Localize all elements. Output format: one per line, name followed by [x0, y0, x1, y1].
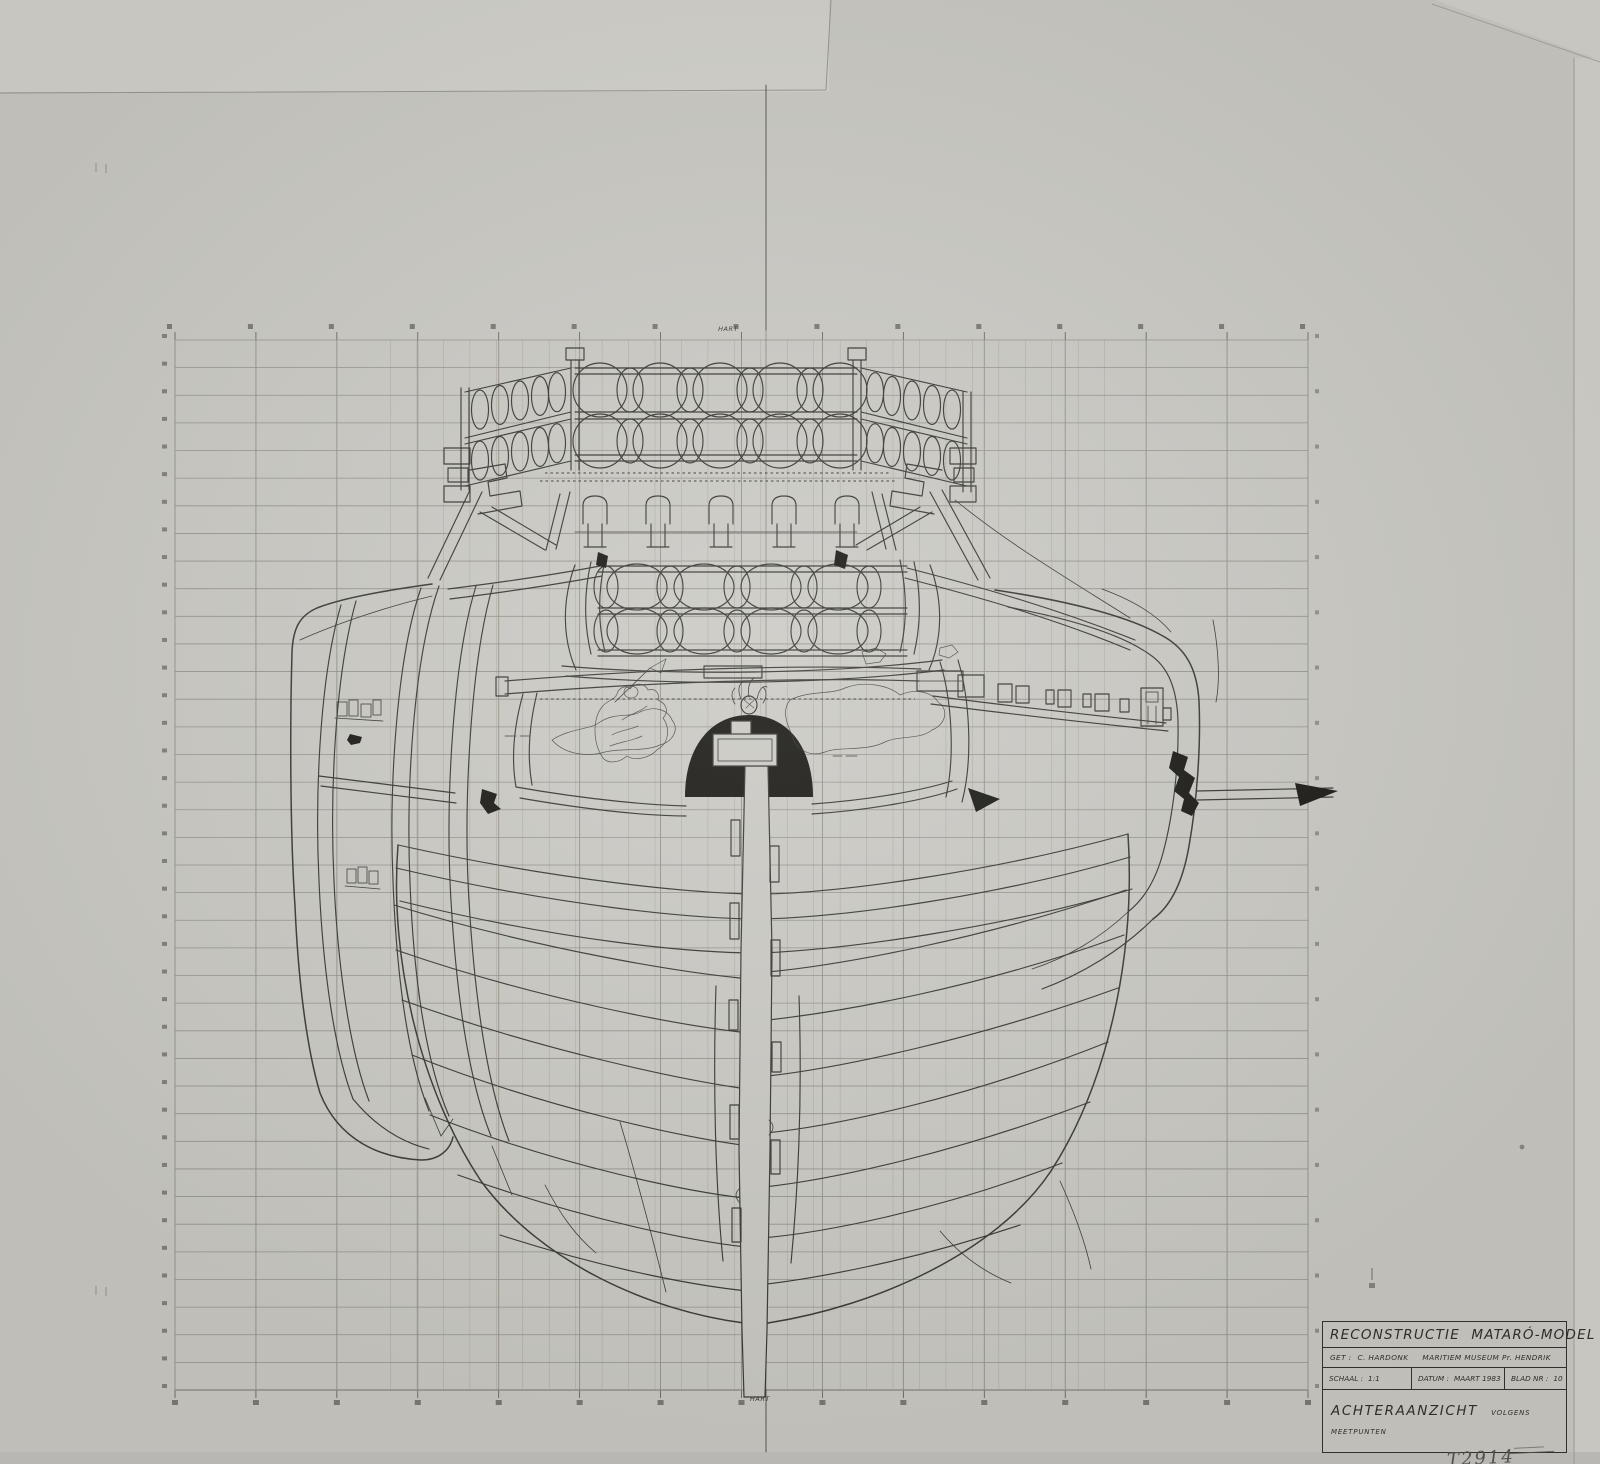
- sheet-number-label: BLAD NR :: [1511, 1374, 1548, 1383]
- stern-view-drawing: HART HART: [0, 0, 1600, 1464]
- scale-value: 1:1: [1368, 1374, 1380, 1383]
- blueprint-photo: HART HART: [0, 0, 1600, 1464]
- drawn-by-row: GET : C. HARDONK MARITIEM MUSEUM Pr. HEN…: [1323, 1348, 1566, 1368]
- ship-stern-drawing: [291, 348, 1338, 1397]
- sheet-edges: [0, 0, 1600, 1464]
- rudder: [713, 721, 781, 1397]
- title-block: RECONSTRUCTIE MATARÓ-MODEL GET : C. HARD…: [1322, 1321, 1567, 1453]
- inventory-number-note: T2914: [1446, 1446, 1515, 1464]
- scale-label: SCHAAL :: [1329, 1374, 1363, 1383]
- rudder-neck: [731, 721, 751, 735]
- drawn-by-label: GET :: [1330, 1353, 1352, 1362]
- poop-rail: [428, 348, 990, 580]
- port-quarter-structure: [291, 584, 509, 1160]
- sheet-number-value: 10: [1553, 1374, 1562, 1383]
- approval-scribble: [1508, 1445, 1554, 1454]
- scale-date-sheet-row: SCHAAL : 1:1 DATUM : MAART 1983 BLAD NR …: [1323, 1368, 1566, 1390]
- view-title-row: ACHTERAANZICHT VOLGENS MEETPUNTEN: [1323, 1390, 1566, 1460]
- transom-crest: [732, 678, 767, 714]
- date-label: DATUM :: [1418, 1374, 1449, 1383]
- stanchions: [546, 492, 896, 550]
- drawn-by-value: C. HARDONK: [1358, 1353, 1409, 1362]
- starboard-quarter-structure: [995, 589, 1338, 989]
- view-title: ACHTERAANZICHT: [1331, 1403, 1478, 1419]
- drawing-title: RECONSTRUCTIE MATARÓ-MODEL: [1323, 1322, 1566, 1348]
- hart-label-top: HART: [718, 325, 738, 333]
- date-value: MAART 1983: [1454, 1374, 1501, 1383]
- institution: MARITIEM MUSEUM Pr. HENDRIK: [1422, 1353, 1551, 1362]
